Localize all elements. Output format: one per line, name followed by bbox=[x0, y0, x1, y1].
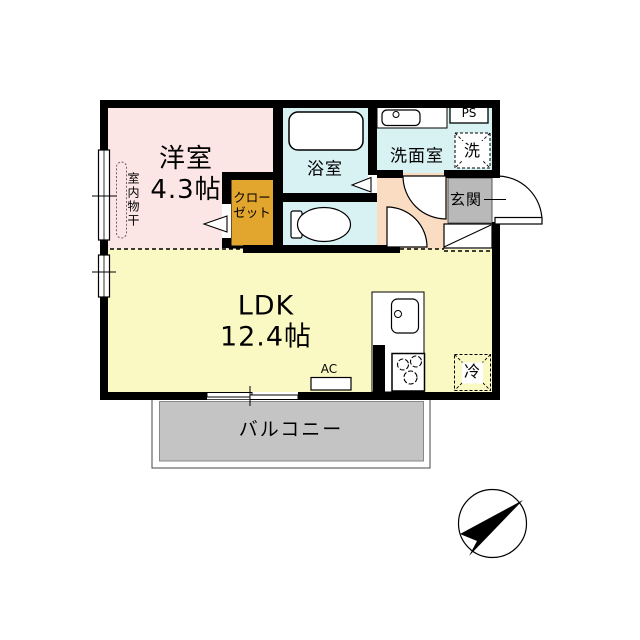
washer-label: 洗 bbox=[464, 143, 480, 159]
western-room-label: 洋室 bbox=[159, 146, 213, 172]
ac-label: AC bbox=[321, 363, 337, 375]
entrance-door-icon bbox=[484, 176, 542, 224]
toilet-bowl-icon bbox=[298, 208, 351, 242]
balcony-label: バルコニー bbox=[239, 421, 344, 440]
ac-unit-icon bbox=[311, 378, 351, 391]
fridge-label: 冷 bbox=[464, 364, 480, 380]
bathtub-icon bbox=[289, 112, 363, 150]
vanity-faucet-icon bbox=[393, 112, 399, 118]
kitchen-faucet-icon bbox=[395, 311, 402, 318]
closet-label-line1: クロー bbox=[233, 192, 271, 205]
western-room-size: 4.3帖 bbox=[150, 177, 221, 203]
vanity-sink-icon bbox=[382, 110, 420, 126]
stove-icon bbox=[392, 354, 425, 392]
ldk-label: LDK bbox=[238, 293, 295, 320]
ldk-size: 12.4帖 bbox=[220, 324, 312, 351]
floor-plan: 洋室 4.3帖 室内物干 クロー ゼット 浴室 洗面室 洗 PS 玄関 LDK … bbox=[0, 0, 640, 640]
indoor-drying-label: 室内物干 bbox=[127, 172, 139, 228]
genkan-label: 玄関 bbox=[450, 193, 482, 208]
floor-plan-drawing bbox=[0, 0, 640, 640]
bath-label: 浴室 bbox=[307, 162, 343, 179]
pipe-space-label: PS bbox=[462, 107, 477, 119]
closet-label-line2: ゼット bbox=[233, 207, 271, 220]
ldk-fill bbox=[108, 249, 492, 392]
washroom-label: 洗面室 bbox=[390, 149, 444, 166]
north-arrow-icon bbox=[459, 490, 527, 558]
